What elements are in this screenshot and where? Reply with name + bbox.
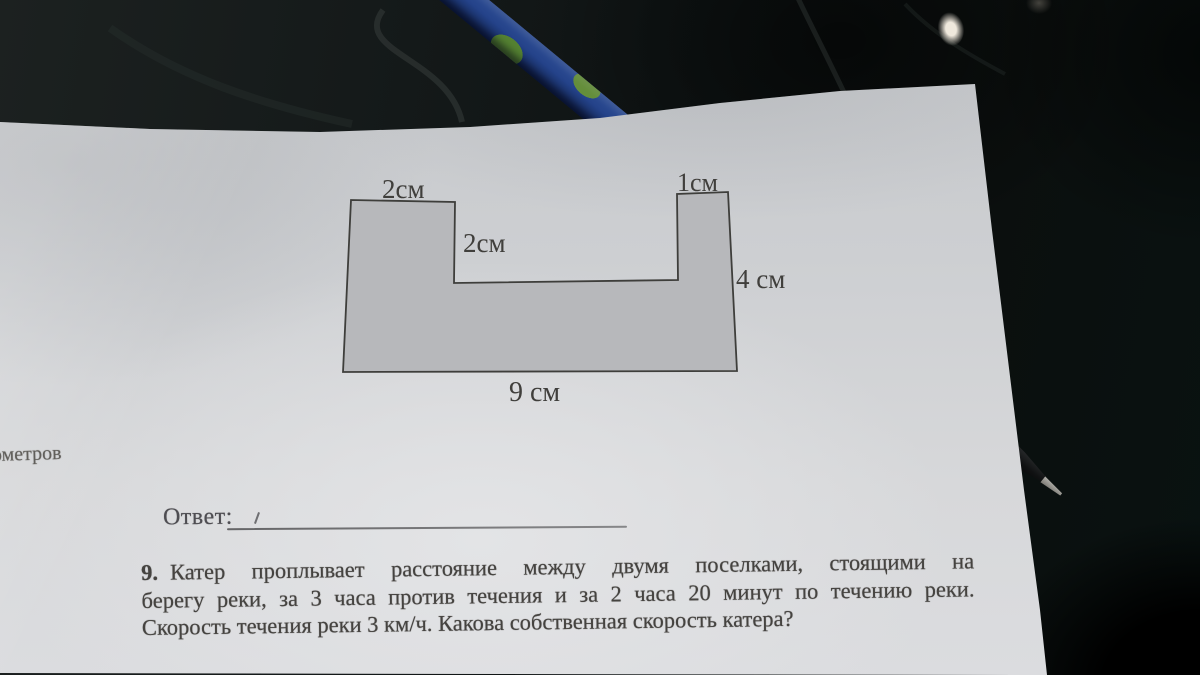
problem-number: 9. bbox=[141, 560, 158, 585]
seam-line bbox=[110, 28, 352, 124]
figure-label-bottom: 9 см bbox=[509, 377, 560, 408]
figure-label-top-right: 1см bbox=[677, 168, 718, 197]
answer-label: Ответ: bbox=[163, 504, 233, 532]
figure-label-inner: 2см bbox=[463, 228, 506, 258]
figure-shape bbox=[343, 192, 737, 372]
photo-scene: 2см 1см 2см 4 см 9 см ометров Ответ: 9.К… bbox=[0, 0, 1200, 675]
figure-label-right: 4 см bbox=[736, 264, 785, 294]
clipped-word: ометров bbox=[0, 442, 62, 467]
problem-text-block: 9.Катер проплывает расстояние между двум… bbox=[141, 547, 975, 641]
figure-label-top-left: 2см bbox=[382, 174, 425, 204]
seam-line bbox=[377, 10, 462, 122]
area-figure: 2см 1см 2см 4 см 9 см bbox=[330, 146, 810, 418]
answer-blank-line bbox=[227, 526, 627, 530]
answer-pen-mark bbox=[254, 512, 260, 524]
pen-metal-tip bbox=[1040, 476, 1064, 498]
